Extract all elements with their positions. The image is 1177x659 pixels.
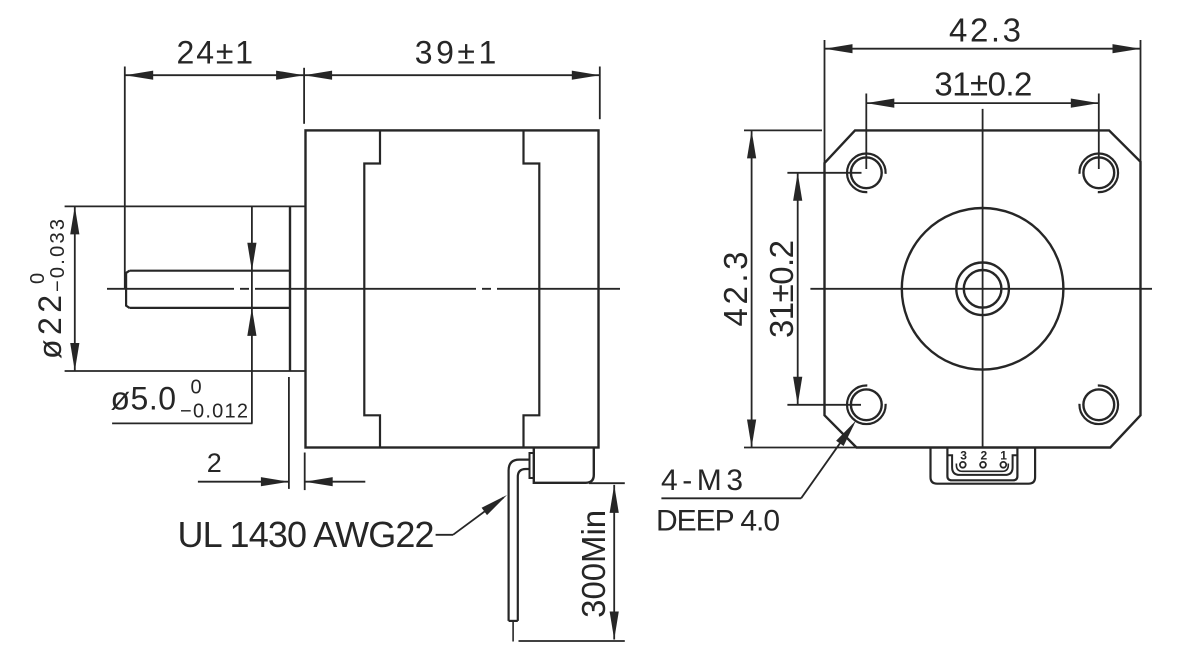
svg-text:24±1: 24±1 (177, 34, 253, 70)
svg-text:DEEP 4.0: DEEP 4.0 (656, 505, 780, 538)
svg-text:2: 2 (207, 448, 222, 478)
svg-text:UL 1430 AWG22: UL 1430 AWG22 (178, 514, 435, 555)
svg-text:0: 0 (27, 273, 49, 284)
svg-text:ø5.0: ø5.0 (111, 381, 177, 417)
svg-text:−0.033: −0.033 (47, 219, 69, 292)
svg-text:ø22: ø22 (32, 295, 68, 359)
svg-text:300Min: 300Min (575, 510, 612, 618)
svg-text:3: 3 (960, 448, 967, 462)
svg-text:39±1: 39±1 (415, 34, 497, 70)
svg-text:42.3: 42.3 (717, 252, 754, 327)
svg-text:42.3: 42.3 (949, 12, 1021, 49)
svg-text:0: 0 (191, 377, 202, 399)
svg-text:31±0.2: 31±0.2 (934, 66, 1032, 103)
svg-text:2: 2 (980, 448, 987, 462)
svg-text:4-M3: 4-M3 (661, 464, 743, 497)
svg-text:1: 1 (1000, 448, 1007, 462)
svg-text:−0.012: −0.012 (180, 401, 248, 423)
svg-text:31±0.2: 31±0.2 (763, 240, 800, 338)
